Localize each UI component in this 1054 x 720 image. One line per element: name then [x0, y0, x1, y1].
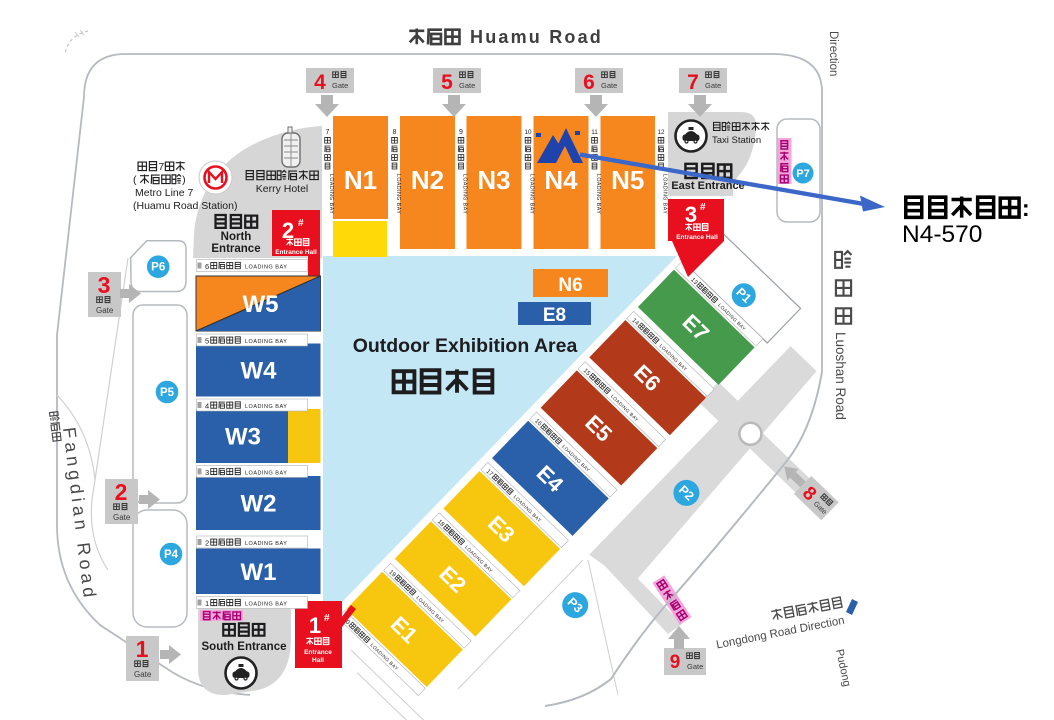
svg-text:#: # — [700, 202, 706, 213]
svg-text:Gate: Gate — [601, 81, 617, 90]
svg-text:5: 5 — [205, 337, 209, 346]
svg-text:Luoshan Road: Luoshan Road — [833, 332, 848, 420]
svg-text:9: 9 — [459, 129, 463, 136]
svg-text:N6: N6 — [558, 275, 582, 296]
svg-text:Entrance Hall: Entrance Hall — [676, 234, 718, 241]
svg-text:LOADING BAY: LOADING BAY — [245, 339, 287, 345]
svg-text:P6: P6 — [151, 262, 165, 274]
svg-text:W1: W1 — [241, 559, 277, 586]
svg-text:N3: N3 — [477, 165, 510, 195]
svg-text:W5: W5 — [243, 291, 279, 318]
svg-text:Outdoor Exhibition Area: Outdoor Exhibition Area — [353, 335, 578, 357]
svg-text:N1: N1 — [344, 165, 377, 195]
svg-text:4: 4 — [205, 402, 209, 411]
svg-text:#: # — [324, 613, 330, 624]
svg-text:5: 5 — [441, 71, 453, 94]
svg-text:#: # — [298, 218, 304, 229]
svg-text:Direction: Direction — [827, 31, 839, 76]
svg-text:Hall: Hall — [312, 657, 324, 664]
svg-text:Gate: Gate — [332, 81, 348, 90]
svg-text:6: 6 — [205, 262, 209, 271]
svg-text:N5: N5 — [611, 165, 644, 195]
svg-text:Metro Line 7: Metro Line 7 — [135, 187, 194, 199]
svg-text:1: 1 — [136, 636, 149, 662]
svg-text:E8: E8 — [543, 305, 566, 326]
svg-text:W4: W4 — [241, 358, 278, 385]
svg-text:4: 4 — [314, 71, 326, 94]
svg-text:1: 1 — [309, 613, 321, 638]
svg-text:7: 7 — [158, 161, 164, 173]
svg-text:North: North — [221, 231, 252, 243]
svg-text:3: 3 — [205, 468, 209, 477]
svg-text:2: 2 — [115, 479, 128, 505]
svg-text:Gate: Gate — [459, 81, 475, 90]
svg-text:8: 8 — [393, 129, 397, 136]
svg-text:11: 11 — [591, 129, 598, 136]
svg-text:LOADING BAY: LOADING BAY — [462, 174, 468, 214]
svg-text:LOADING BAY: LOADING BAY — [662, 174, 668, 214]
svg-text:Gate: Gate — [134, 670, 152, 679]
svg-text:Longdong Road Direction: Longdong Road Direction — [715, 615, 845, 652]
svg-text:P5: P5 — [160, 387, 175, 399]
svg-text:Pudong: Pudong — [833, 648, 853, 688]
svg-text:P7: P7 — [796, 168, 809, 180]
svg-text:Gate: Gate — [687, 662, 703, 671]
svg-text:9: 9 — [670, 652, 681, 673]
svg-text:Kerry Hotel: Kerry Hotel — [256, 183, 309, 195]
svg-text:(: ( — [133, 174, 137, 186]
svg-text:Entrance: Entrance — [304, 649, 332, 656]
svg-text:N2: N2 — [411, 165, 444, 195]
svg-text:3: 3 — [685, 202, 697, 227]
svg-text:Huamu Road: Huamu Road — [470, 27, 603, 47]
svg-text:LOADING BAY: LOADING BAY — [245, 541, 287, 547]
svg-text:LOADING BAY: LOADING BAY — [245, 470, 287, 476]
svg-text:Entrance Hall: Entrance Hall — [275, 249, 317, 256]
svg-text:N4: N4 — [544, 165, 578, 195]
svg-text:LOADING BAY: LOADING BAY — [245, 602, 287, 608]
svg-text:): ) — [182, 174, 186, 186]
svg-text::: : — [1022, 195, 1030, 221]
svg-text:Taxi Station: Taxi Station — [712, 135, 761, 146]
svg-text:P4: P4 — [164, 549, 179, 561]
svg-text:W3: W3 — [225, 424, 261, 451]
svg-text:12: 12 — [657, 129, 665, 136]
svg-text:10: 10 — [524, 129, 532, 136]
svg-text:3: 3 — [98, 272, 111, 298]
svg-text:South Entrance: South Entrance — [202, 641, 287, 653]
svg-text:Entrance: Entrance — [211, 243, 260, 255]
svg-text:Gate: Gate — [113, 513, 131, 522]
svg-text:1: 1 — [205, 599, 209, 608]
svg-text:N4-570: N4-570 — [902, 221, 982, 248]
svg-text:LOADING BAY: LOADING BAY — [595, 174, 601, 214]
svg-text:6: 6 — [583, 71, 595, 94]
svg-text:LOADING BAY: LOADING BAY — [245, 404, 287, 410]
svg-text:LOADING BAY: LOADING BAY — [245, 265, 287, 271]
svg-text:LOADING BAY: LOADING BAY — [395, 174, 401, 214]
svg-text:7: 7 — [326, 129, 330, 136]
svg-text:Gate: Gate — [96, 306, 114, 315]
svg-text:7: 7 — [687, 71, 699, 94]
svg-text:Gate: Gate — [705, 81, 721, 90]
svg-text:LOADING BAY: LOADING BAY — [529, 174, 535, 214]
svg-text:(Huamu Road Station): (Huamu Road Station) — [133, 200, 237, 212]
svg-text:W2: W2 — [241, 491, 277, 518]
svg-text:LOADING BAY: LOADING BAY — [328, 174, 334, 214]
svg-text:2: 2 — [205, 539, 209, 548]
